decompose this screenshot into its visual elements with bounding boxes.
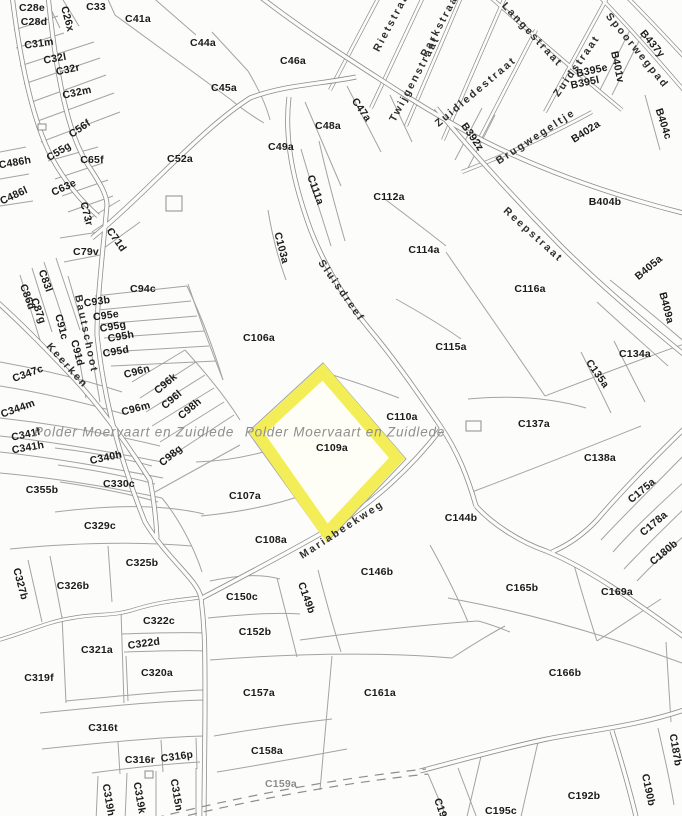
parcel-label-c486l: C486l bbox=[0, 185, 29, 207]
parcel-label-c95h: C95h bbox=[107, 330, 135, 345]
parcel-label-c47a: C47a bbox=[349, 96, 372, 123]
parcel-label-c110a: C110a bbox=[386, 412, 417, 423]
parcel-label-c32r: C32r bbox=[55, 62, 81, 77]
parcel-label-c320a: C320a bbox=[141, 668, 173, 679]
parcel-label-c146b: C146b bbox=[361, 567, 394, 578]
parcel-label-c319k: C319k bbox=[131, 781, 147, 814]
parcel-label-c94c: C94c bbox=[130, 284, 156, 295]
region-watermark: Polder Moervaart en Zuidlede bbox=[34, 425, 234, 439]
map-labels: C28eC28dC26xC33C41aC44aC31mC32lC32rC32mC… bbox=[0, 0, 682, 816]
cadastral-map: C28eC28dC26xC33C41aC44aC31mC32lC32rC32mC… bbox=[0, 0, 682, 816]
parcel-label-c316p: C316p bbox=[160, 750, 194, 765]
street-label: Twijgenstraat bbox=[388, 34, 442, 123]
parcel-label-c41a: C41a bbox=[125, 14, 151, 25]
street-label: Zuidledestraat bbox=[433, 55, 518, 129]
parcel-label-c175a: C175a bbox=[626, 477, 657, 506]
region-watermark: Polder Moervaart en Zuidlede bbox=[245, 425, 445, 439]
parcel-label-c180b: C180b bbox=[648, 539, 680, 568]
parcel-label-c91c: C91c bbox=[53, 313, 70, 341]
parcel-label-c65f: C65f bbox=[80, 155, 104, 166]
parcel-label-c166b: C166b bbox=[549, 668, 582, 679]
parcel-label-b404b: B404b bbox=[589, 197, 622, 208]
parcel-label-c56f: C56f bbox=[67, 118, 92, 140]
parcel-label-c161a: C161a bbox=[364, 688, 396, 699]
parcel-label-c169a: C169a bbox=[601, 587, 633, 598]
parcel-label-c96m: C96m bbox=[120, 400, 151, 418]
parcel-label-c192b: C192b bbox=[568, 791, 601, 802]
parcel-label-c150c: C150c bbox=[226, 592, 258, 603]
parcel-label-c44a: C44a bbox=[190, 38, 216, 49]
parcel-label-c316r: C316r bbox=[125, 755, 155, 766]
parcel-label-c111a: C111a bbox=[305, 174, 325, 207]
street-label: Sluisdreef bbox=[316, 258, 366, 324]
parcel-label-c46a: C46a bbox=[280, 56, 306, 67]
parcel-label-c157a: C157a bbox=[243, 688, 275, 699]
parcel-label-c325b: C325b bbox=[126, 558, 159, 569]
parcel-label-c195c: C195c bbox=[485, 806, 517, 816]
parcel-label-b404c: B404c bbox=[653, 107, 673, 141]
street-label: Rietstraat bbox=[372, 0, 414, 54]
street-label: Mariabeekweg bbox=[298, 499, 386, 561]
parcel-label-c98g: C98g bbox=[157, 443, 184, 468]
parcel-label-c106a: C106a bbox=[243, 333, 275, 344]
parcel-label-c114a: C114a bbox=[408, 245, 439, 256]
parcel-label-c152b: C152b bbox=[239, 627, 272, 638]
parcel-label-c327b: C327b bbox=[11, 567, 30, 601]
parcel-label-c158a: C158a bbox=[251, 746, 283, 757]
parcel-label-c149b: C149b bbox=[296, 581, 317, 615]
parcel-label-c322d: C322d bbox=[127, 637, 161, 652]
parcel-label-b401v: B401v bbox=[609, 50, 626, 83]
parcel-label-c28e: C28e bbox=[19, 3, 45, 14]
parcel-label-c32m: C32m bbox=[62, 85, 93, 101]
parcel-label-c108a: C108a bbox=[255, 535, 287, 546]
parcel-label-c178a: C178a bbox=[638, 510, 669, 539]
parcel-label-c63e: C63e bbox=[50, 178, 78, 198]
parcel-label-c109a[interactable]: C109a bbox=[316, 443, 348, 454]
parcel-label-c486h: C486h bbox=[0, 155, 32, 171]
parcel-label-c28d: C28d bbox=[21, 17, 47, 28]
parcel-label-c165b: C165b bbox=[506, 583, 539, 594]
parcel-label-c52a: C52a bbox=[167, 154, 193, 165]
parcel-label-c93b: C93b bbox=[83, 295, 111, 309]
parcel-label-b392z: B392z bbox=[459, 121, 486, 153]
parcel-label-c326b: C326b bbox=[57, 581, 90, 592]
parcel-label-b409a: B409a bbox=[657, 291, 675, 325]
parcel-label-c347c: C347c bbox=[11, 364, 45, 385]
parcel-label-c355b: C355b bbox=[26, 485, 59, 496]
parcel-label-c19: C19 bbox=[432, 797, 449, 816]
street-label: Brugwegeltje bbox=[494, 107, 577, 166]
parcel-label-c187b: C187b bbox=[667, 733, 682, 767]
parcel-label-c33: C33 bbox=[86, 2, 106, 13]
parcel-label-c138a: C138a bbox=[584, 453, 616, 464]
parcel-label-c45a: C45a bbox=[211, 83, 237, 94]
parcel-label-c95d: C95d bbox=[102, 345, 130, 360]
parcel-label-c319h: C319h bbox=[100, 783, 116, 816]
parcel-label-c26x: C26x bbox=[59, 5, 76, 33]
parcel-label-c49a: C49a bbox=[268, 142, 294, 153]
street-label: Reepstraat bbox=[501, 206, 565, 265]
parcel-label-c103a: C103a bbox=[272, 231, 290, 265]
parcel-label-c315n: C315n bbox=[168, 778, 184, 812]
parcel-label-c144b: C144b bbox=[445, 513, 478, 524]
parcel-label-c73r: C73r bbox=[78, 201, 94, 227]
parcel-label-c137a: C137a bbox=[518, 419, 550, 430]
parcel-label-c134a: C134a bbox=[619, 349, 651, 360]
parcel-label-c83l: C83l bbox=[36, 268, 54, 293]
parcel-label-c190b: C190b bbox=[639, 773, 656, 807]
parcel-label-b405a: B405a bbox=[633, 254, 664, 283]
parcel-label-c87g: C87g bbox=[29, 297, 48, 325]
parcel-label-c319f: C319f bbox=[24, 673, 54, 684]
parcel-label-c71d: C71d bbox=[104, 226, 128, 254]
parcel-label-c330c: C330c bbox=[103, 479, 135, 490]
parcel-label-c344m: C344m bbox=[0, 398, 36, 420]
parcel-label-c48a: C48a bbox=[315, 121, 341, 132]
parcel-label-c159a: C159a bbox=[265, 779, 297, 790]
parcel-label-c96n: C96n bbox=[123, 364, 151, 381]
parcel-label-c112a: C112a bbox=[373, 192, 404, 203]
parcel-label-c55g: C55g bbox=[45, 141, 73, 164]
parcel-label-c31m: C31m bbox=[24, 37, 55, 51]
parcel-label-c107a: C107a bbox=[229, 491, 261, 502]
parcel-label-c79v: C79v bbox=[73, 247, 99, 258]
parcel-label-c329c: C329c bbox=[84, 521, 116, 532]
parcel-label-c115a: C115a bbox=[435, 342, 466, 353]
parcel-label-c340h: C340h bbox=[89, 449, 123, 466]
parcel-label-c116a: C116a bbox=[514, 284, 545, 295]
parcel-label-c135a: C135a bbox=[584, 358, 611, 390]
parcel-label-c316t: C316t bbox=[88, 723, 118, 734]
parcel-label-c322c: C322c bbox=[143, 616, 175, 627]
parcel-label-c321a: C321a bbox=[81, 645, 113, 656]
parcel-label-b402a: B402a bbox=[570, 119, 603, 145]
